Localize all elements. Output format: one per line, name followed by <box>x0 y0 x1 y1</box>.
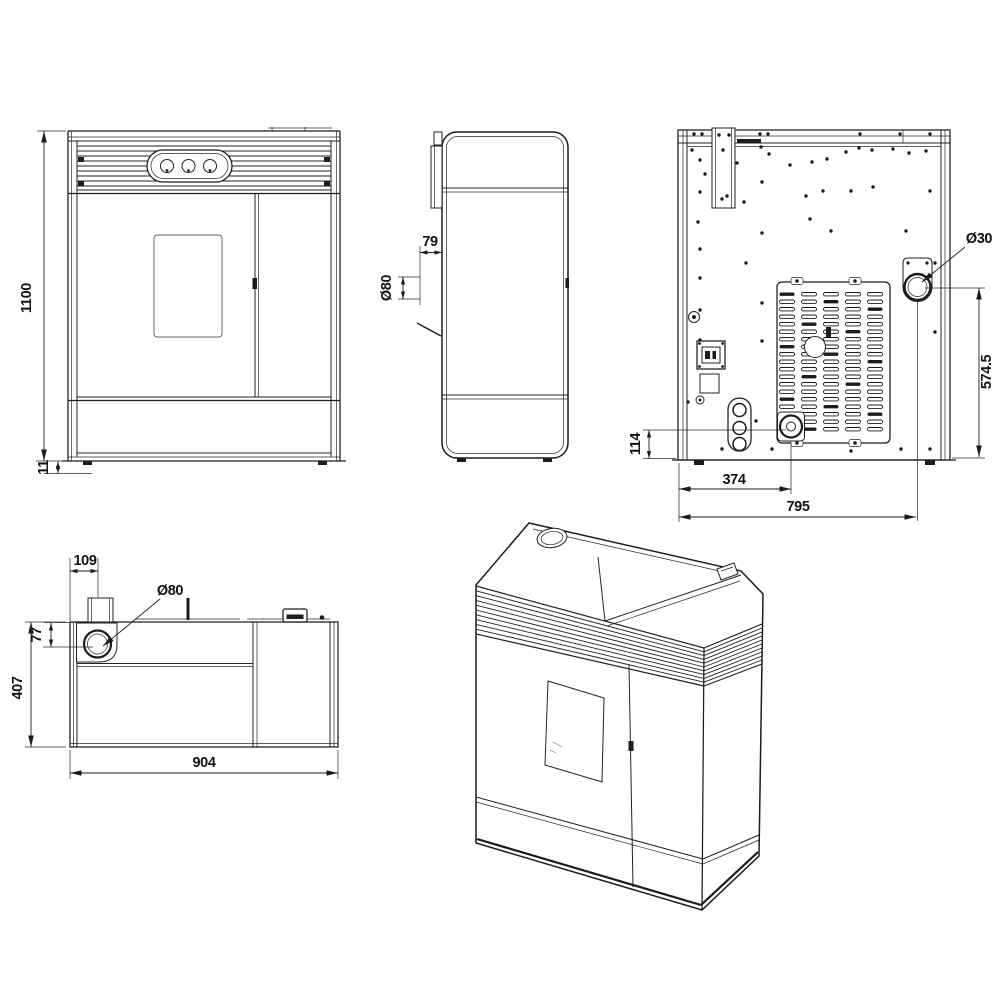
chimney-channel <box>712 128 735 208</box>
screw-dot <box>924 149 927 152</box>
door-window <box>154 235 222 337</box>
air-intake-port <box>778 412 805 441</box>
screw-dot <box>692 132 695 135</box>
vent-slot <box>868 360 883 363</box>
screw-dot <box>690 148 693 151</box>
screw-dot <box>754 419 757 422</box>
screw-dot <box>760 339 763 342</box>
vent-slot <box>846 383 861 386</box>
grille-end-block <box>324 181 330 186</box>
flue-collar <box>88 598 113 622</box>
vent-slot <box>802 375 817 378</box>
dim-side-flue-diameter: Ø80 <box>379 275 395 302</box>
screw-dot <box>717 133 720 136</box>
door-handle <box>417 323 441 336</box>
dim-top-flue-diameter: Ø80 <box>157 583 184 599</box>
screw-dot <box>766 132 769 135</box>
fan-hole <box>805 337 826 358</box>
door-handle <box>629 741 634 751</box>
grille-end-block <box>324 157 330 162</box>
screw-dot <box>928 189 931 192</box>
flue-outlet <box>903 258 932 302</box>
screw-dot <box>933 261 936 264</box>
vent-slot <box>846 330 861 333</box>
screw-dot <box>870 148 873 151</box>
rear-stub <box>434 132 442 145</box>
foot <box>694 460 704 465</box>
grille-end-block <box>78 157 84 162</box>
screw-dot <box>788 163 791 166</box>
screw-dot <box>899 447 902 450</box>
control-panel <box>147 150 232 182</box>
vent-slot <box>824 405 839 408</box>
screw-dot <box>767 152 770 155</box>
dim-back-intake-offset: 374 <box>723 472 746 488</box>
screw-dot <box>760 301 763 304</box>
screw-dot <box>810 160 813 163</box>
screw-dot <box>858 132 861 135</box>
screw-dot <box>760 180 763 183</box>
top-view: 109 Ø80 77 407 904 <box>10 553 338 779</box>
screw-dot <box>686 400 689 403</box>
foot <box>83 461 92 465</box>
dim-back-port-height: 574.5 <box>979 355 995 390</box>
dim-top-width: 904 <box>193 755 216 771</box>
side-view: 79 Ø80 <box>379 132 569 462</box>
foot <box>457 458 466 462</box>
vent-slot <box>802 323 817 326</box>
vent-slot <box>824 300 839 303</box>
screw-dot <box>904 229 907 232</box>
screw-dot <box>857 146 860 149</box>
vent-slot <box>824 353 839 356</box>
foot <box>318 461 327 465</box>
dim-side-flue-offset: 79 <box>422 234 438 250</box>
foot <box>925 460 935 465</box>
connector-plate <box>728 398 751 451</box>
screw-dot <box>696 220 699 223</box>
screw-dot <box>721 148 724 151</box>
screw-dot <box>871 185 874 188</box>
screw-dot <box>825 157 828 160</box>
screw-dot <box>735 161 738 164</box>
dim-back-intake-height: 114 <box>628 433 644 456</box>
screw-dot <box>698 308 701 311</box>
screw-dot <box>703 172 706 175</box>
screw-dot <box>821 189 824 192</box>
vent-slot <box>868 308 883 311</box>
grille-end-block <box>78 181 84 186</box>
power-socket <box>697 341 725 369</box>
screw-dot <box>720 447 723 450</box>
screw-dot <box>727 133 730 136</box>
screw-dot <box>898 132 901 135</box>
screw-dot <box>844 150 847 153</box>
screw-dot <box>808 217 811 220</box>
dim-back-port-diameter: Ø30 <box>966 231 993 247</box>
screw-dot <box>698 276 701 279</box>
screw-dot <box>725 194 728 197</box>
vent-slot <box>868 413 883 416</box>
screw-dot <box>849 189 852 192</box>
vent-slot <box>780 345 795 348</box>
screw-dot <box>804 194 807 197</box>
screw-dot <box>933 330 936 333</box>
screw-dot <box>770 447 773 450</box>
screw-dot <box>907 151 910 154</box>
screw-dot <box>698 158 701 161</box>
screw-dot <box>700 132 703 135</box>
screw-dot <box>759 145 762 148</box>
dim-top-depth: 407 <box>10 676 26 699</box>
dim-top-flue-side-offset: 109 <box>74 553 97 569</box>
screw-dot <box>742 200 745 203</box>
screw-dot <box>698 190 701 193</box>
foot <box>543 458 552 462</box>
vent-slot <box>780 398 795 401</box>
screw-dot <box>698 247 701 250</box>
front-view: 1100 11 <box>19 127 346 475</box>
screw-dot <box>720 197 723 200</box>
drawing-canvas: 1100 11 79 Ø80 <box>0 0 1000 1000</box>
screw-dot <box>829 229 832 232</box>
screw-dot <box>928 132 931 135</box>
dim-back-port-offset: 795 <box>787 499 810 515</box>
screw-dot <box>744 261 747 264</box>
side-latch <box>566 278 570 288</box>
screw-dot <box>891 147 894 150</box>
rear-flue-channel <box>431 146 442 208</box>
back-view: Ø30 574.5 114 374 795 <box>628 128 995 522</box>
perspective-view <box>476 523 763 910</box>
display-unit <box>283 609 307 622</box>
screw-dot <box>758 132 761 135</box>
screw-dot <box>760 231 763 234</box>
screw-dot <box>849 449 852 452</box>
junction-box <box>700 374 719 393</box>
screw-dot <box>928 447 931 450</box>
vent-slot <box>780 293 795 296</box>
stove-technical-drawing: 1100 11 79 Ø80 <box>0 0 1000 1000</box>
top-button <box>320 615 325 620</box>
dim-front-overall-height: 1100 <box>19 283 35 313</box>
door-latch <box>253 278 258 289</box>
flue-pipe <box>84 631 111 658</box>
dim-front-base-height: 11 <box>36 460 52 475</box>
